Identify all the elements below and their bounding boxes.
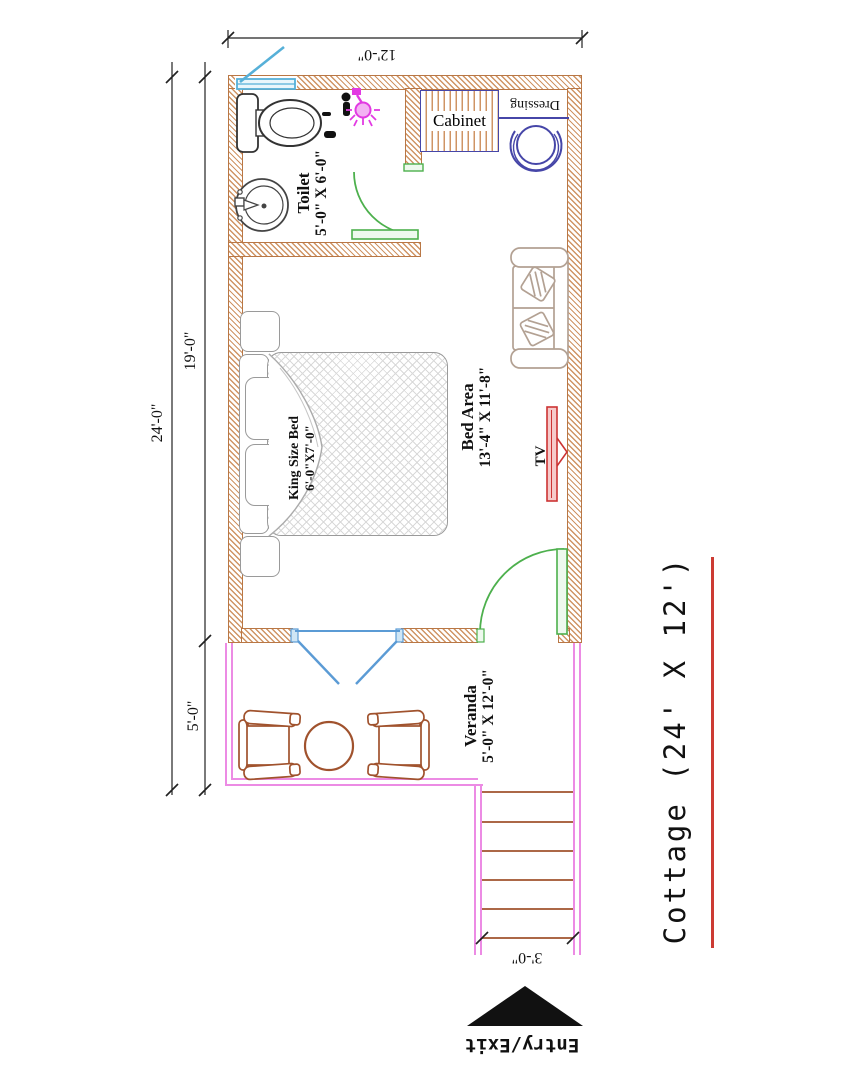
toilet-room-name: Toilet [295,173,313,214]
veranda-name: Veranda [462,685,480,747]
floor-plan-page: Cabinet Dressing [0,0,868,1080]
toilet-door-icon [352,164,423,239]
veranda-chair-right-icon [368,710,429,780]
sofa-icon [511,248,568,368]
bed-area-name: Bed Area [459,383,477,450]
bed-area-dims: 13'-4" X 11'-8" [478,367,495,468]
nightstand-top [240,311,280,352]
king-bed-label: King Size Bed 6'-0"X7'-0" [286,406,318,510]
dimension-stairs-bottom: 3'-0" [499,948,555,966]
bed-pillow-bottom [245,444,278,506]
washbasin-icon [235,179,288,231]
veranda-window-icon [291,629,403,684]
entry-arrow-icon [467,986,583,1026]
dimension-veranda-left: 5'-0" [184,692,204,740]
veranda-dims: 5'-0" X 12'-0" [481,669,498,763]
stairs-icon [482,792,573,938]
shower-icon [342,88,381,126]
bed-area-label: Bed Area 13'-4" X 11'-8" [457,349,497,485]
king-bed-name: King Size Bed [287,416,302,500]
king-bed-dims: 6'-0"X7'-0" [303,425,317,491]
dimension-width-top: 12'-0" [342,44,412,64]
veranda-table-icon [305,722,353,770]
tv-icon [547,407,567,501]
tv-label: TV [532,441,550,471]
plan-title: Cottage (24' X 12') [656,550,696,950]
window-top-icon [235,47,297,89]
dimension-overall-left: 24'-0" [148,394,168,452]
nightstand-bottom [240,536,280,577]
main-door-icon [477,549,567,642]
plan-linework [0,0,868,1080]
dimension-room-left: 19'-0" [181,322,201,380]
veranda-chair-left-icon [239,710,300,780]
dressing-stool-icon [510,126,561,171]
veranda-label: Veranda 5'-0" X 12'-0" [460,654,500,778]
bed-pillow-top [245,377,278,440]
entry-exit-label: Entry/Exit [452,1034,592,1056]
toilet-room-label: Toilet 5'-0" X 6'-0" [293,133,333,253]
toilet-room-dims: 5'-0" X 6'-0" [314,150,331,236]
